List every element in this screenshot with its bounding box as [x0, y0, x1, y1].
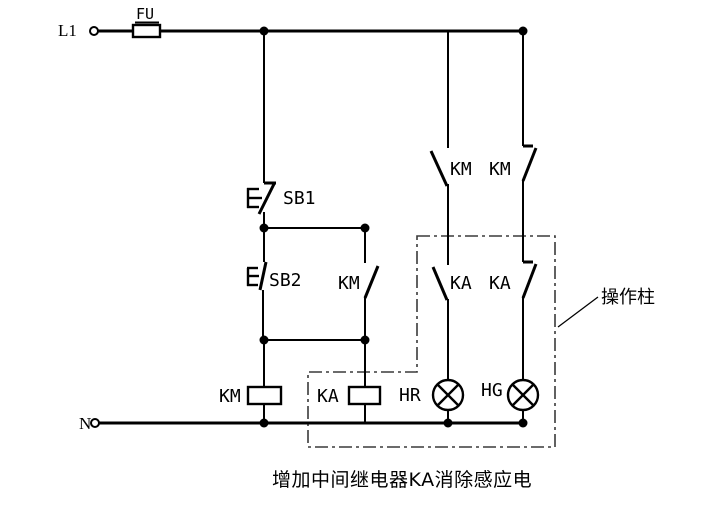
junction-dot [361, 224, 370, 233]
n-terminal [91, 419, 99, 427]
junction-dot [519, 27, 528, 36]
sb1-label: SB1 [283, 188, 316, 209]
enclosure-dashdot-box [308, 236, 555, 447]
km-seal-in-label: KM [338, 273, 360, 294]
circuit-diagram: L1 N FU SB1 SB2 KM KM KM KA KA KM KA HR … [0, 0, 716, 508]
enclosure-label: 操作柱 [601, 287, 655, 308]
junction-dot [519, 419, 528, 428]
enclosure-leader-line [558, 297, 598, 327]
l1-label: L1 [58, 21, 77, 40]
ka-coil-symbol [349, 387, 380, 404]
circuit-diagram-page: L1 N FU SB1 SB2 KM KM KM KA KA KM KA HR … [0, 0, 716, 508]
km-coil-symbol [248, 387, 281, 404]
diagram-caption: 增加中间继电器KA消除感应电 [272, 469, 532, 491]
km-coil-label: KM [219, 386, 241, 407]
hg-lamp-label: HG [481, 380, 503, 401]
hr-lamp-label: HR [399, 385, 421, 406]
junction-dot [444, 419, 453, 428]
hg-lamp-symbol [508, 380, 538, 410]
km-nc-contact-label: KM [489, 159, 511, 180]
ka-nc-contact-symbol [523, 262, 536, 298]
fuse-label: FU [136, 5, 154, 23]
ka-no-contact-symbol [433, 267, 447, 300]
n-label: N [79, 414, 91, 433]
fuse-symbol [133, 23, 160, 38]
ka-nc-contact-label: KA [489, 273, 511, 294]
junction-dot [260, 419, 269, 428]
km-no-contact-label: KM [450, 159, 472, 180]
junction-dot [260, 336, 269, 345]
sb2-label: SB2 [269, 270, 302, 291]
km-no-contact-symbol [431, 151, 447, 186]
l1-terminal [90, 27, 98, 35]
junction-dot [361, 336, 370, 345]
ka-coil-label: KA [317, 386, 339, 407]
hr-lamp-symbol [433, 380, 463, 410]
ka-no-contact-label: KA [450, 273, 472, 294]
junction-dot [260, 27, 269, 36]
km-seal-in-contact-symbol [365, 266, 378, 298]
km-nc-contact-symbol [523, 146, 536, 181]
junction-dot [260, 224, 269, 233]
sb1-nc-pushbutton-symbol [247, 183, 276, 214]
sb2-no-pushbutton-symbol [247, 262, 266, 290]
